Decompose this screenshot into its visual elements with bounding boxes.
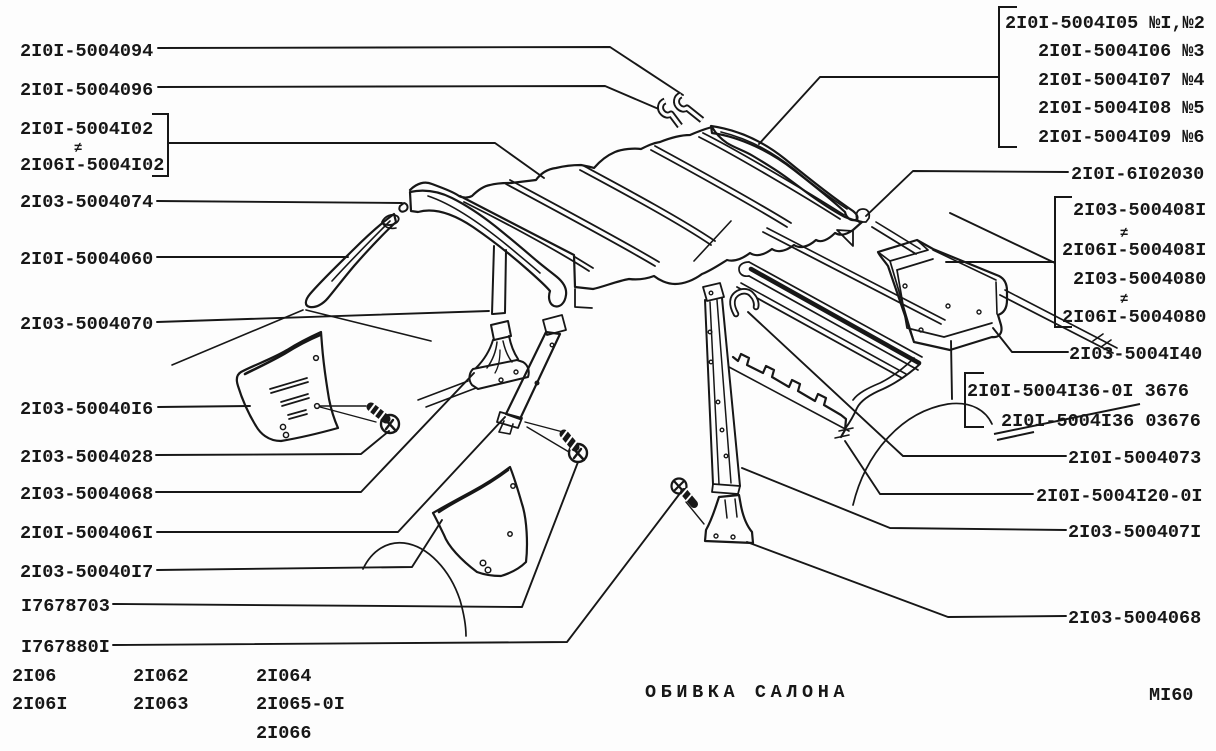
svg-text:2I065-0I: 2I065-0I xyxy=(256,694,345,715)
svg-text:2I063: 2I063 xyxy=(133,694,189,715)
svg-text:2I03-5004I40: 2I03-5004I40 xyxy=(1069,344,1202,365)
svg-text:2I03-5004068: 2I03-5004068 xyxy=(1068,608,1201,629)
svg-text:ОБИВКА САЛОНА: ОБИВКА САЛОНА xyxy=(645,682,849,703)
svg-text:2I06I-5004I02: 2I06I-5004I02 xyxy=(20,155,164,176)
svg-text:2I06: 2I06 xyxy=(12,666,56,687)
svg-text:2I06I: 2I06I xyxy=(12,694,68,715)
svg-text:2I0I-5004096: 2I0I-5004096 xyxy=(20,80,153,101)
svg-text:2I0I-5004I06 №3: 2I0I-5004I06 №3 xyxy=(1038,41,1205,62)
svg-text:2I0I-5004I02: 2I0I-5004I02 xyxy=(20,119,153,140)
svg-text:2I0I-5004I20-0I: 2I0I-5004I20-0I xyxy=(1036,486,1203,507)
svg-text:2I0I-5004094: 2I0I-5004094 xyxy=(20,41,153,62)
svg-text:2I03-500407I: 2I03-500407I xyxy=(1068,522,1201,543)
svg-text:2I0I-6I02030: 2I0I-6I02030 xyxy=(1071,164,1204,185)
svg-text:2I03-5004028: 2I03-5004028 xyxy=(20,447,153,468)
svg-text:2I0I-5004060: 2I0I-5004060 xyxy=(20,249,153,270)
svg-text:2I066: 2I066 xyxy=(256,723,312,744)
svg-text:2I0I-500406I: 2I0I-500406I xyxy=(20,523,153,544)
svg-text:МI60: МI60 xyxy=(1149,685,1193,706)
svg-text:2I0I-5004I36-0I 3676: 2I0I-5004I36-0I 3676 xyxy=(967,381,1189,402)
svg-text:2I03-5004080: 2I03-5004080 xyxy=(1073,269,1206,290)
svg-text:2I03-500408I: 2I03-500408I xyxy=(1073,200,1206,221)
svg-text:2I062: 2I062 xyxy=(133,666,189,687)
svg-text:2I0I-5004I05 №I,№2: 2I0I-5004I05 №I,№2 xyxy=(1005,13,1205,34)
svg-text:2I0I-5004I07 №4: 2I0I-5004I07 №4 xyxy=(1038,70,1205,91)
svg-text:2I06I-5004080: 2I06I-5004080 xyxy=(1062,307,1206,328)
svg-text:2I0I-5004073: 2I0I-5004073 xyxy=(1068,448,1201,469)
svg-text:2I0I-5004I36 03676: 2I0I-5004I36 03676 xyxy=(1001,411,1201,432)
svg-text:2I03-5004074: 2I03-5004074 xyxy=(20,192,153,213)
svg-text:I767880I: I767880I xyxy=(21,637,110,658)
svg-text:2I03-50040I7: 2I03-50040I7 xyxy=(20,562,153,583)
svg-text:2I064: 2I064 xyxy=(256,666,312,687)
svg-text:2I0I-5004I09 №6: 2I0I-5004I09 №6 xyxy=(1038,127,1205,148)
svg-text:2I03-5004068: 2I03-5004068 xyxy=(20,484,153,505)
svg-text:2I06I-500408I: 2I06I-500408I xyxy=(1062,240,1206,261)
svg-text:≠: ≠ xyxy=(1120,292,1128,308)
svg-text:2I03-5004070: 2I03-5004070 xyxy=(20,314,153,335)
svg-text:2I03-50040I6: 2I03-50040I6 xyxy=(20,399,153,420)
svg-text:I7678703: I7678703 xyxy=(21,596,110,617)
svg-text:2I0I-5004I08 №5: 2I0I-5004I08 №5 xyxy=(1038,98,1205,119)
